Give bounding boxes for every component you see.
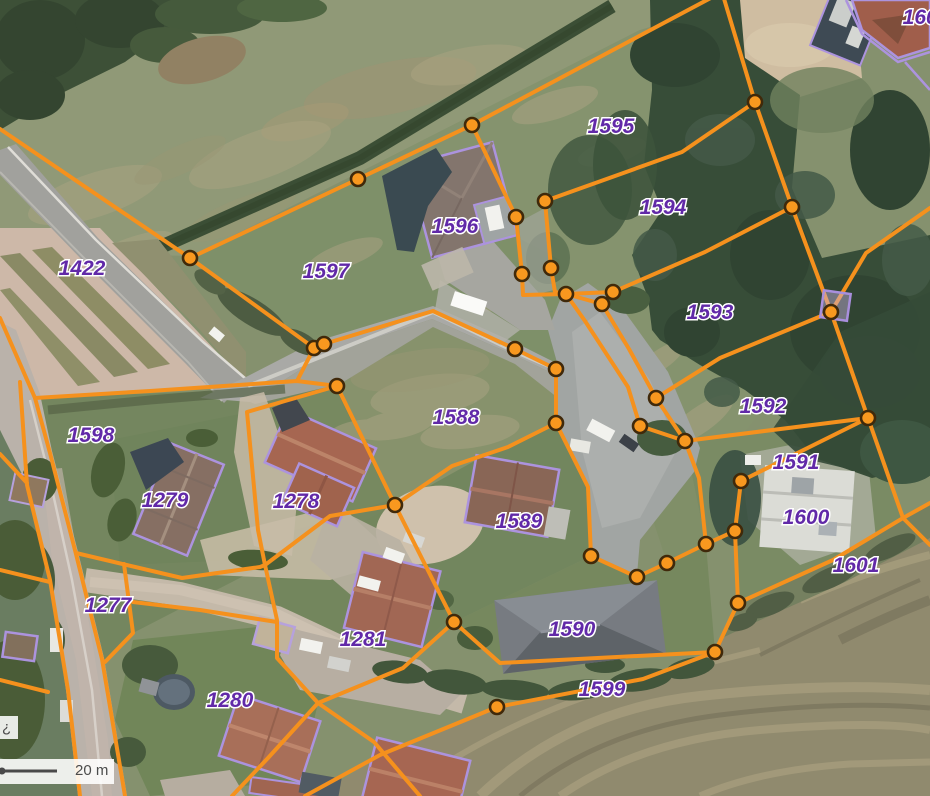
- svg-text:1595: 1595: [588, 115, 635, 138]
- svg-text:1600: 1600: [783, 506, 830, 529]
- svg-text:1597: 1597: [303, 260, 351, 283]
- svg-text:1594: 1594: [640, 196, 687, 219]
- svg-text:1277: 1277: [85, 594, 133, 617]
- svg-text:1601: 1601: [833, 554, 880, 577]
- svg-text:1598: 1598: [68, 424, 115, 447]
- svg-text:¿: ¿: [2, 719, 11, 736]
- svg-text:1281: 1281: [340, 628, 387, 651]
- svg-text:20 m: 20 m: [75, 762, 108, 779]
- svg-text:1590: 1590: [549, 618, 596, 641]
- svg-text:1602: 1602: [903, 6, 930, 29]
- svg-text:1588: 1588: [433, 406, 480, 429]
- svg-text:1280: 1280: [207, 689, 254, 712]
- svg-text:1279: 1279: [142, 489, 189, 512]
- svg-text:1422: 1422: [59, 257, 106, 280]
- svg-text:1591: 1591: [773, 451, 820, 474]
- svg-text:1592: 1592: [740, 395, 787, 418]
- svg-text:1593: 1593: [687, 301, 734, 324]
- svg-text:1589: 1589: [496, 510, 543, 533]
- svg-text:1278: 1278: [273, 490, 320, 513]
- svg-text:1596: 1596: [432, 215, 479, 238]
- svg-text:1599: 1599: [579, 678, 626, 701]
